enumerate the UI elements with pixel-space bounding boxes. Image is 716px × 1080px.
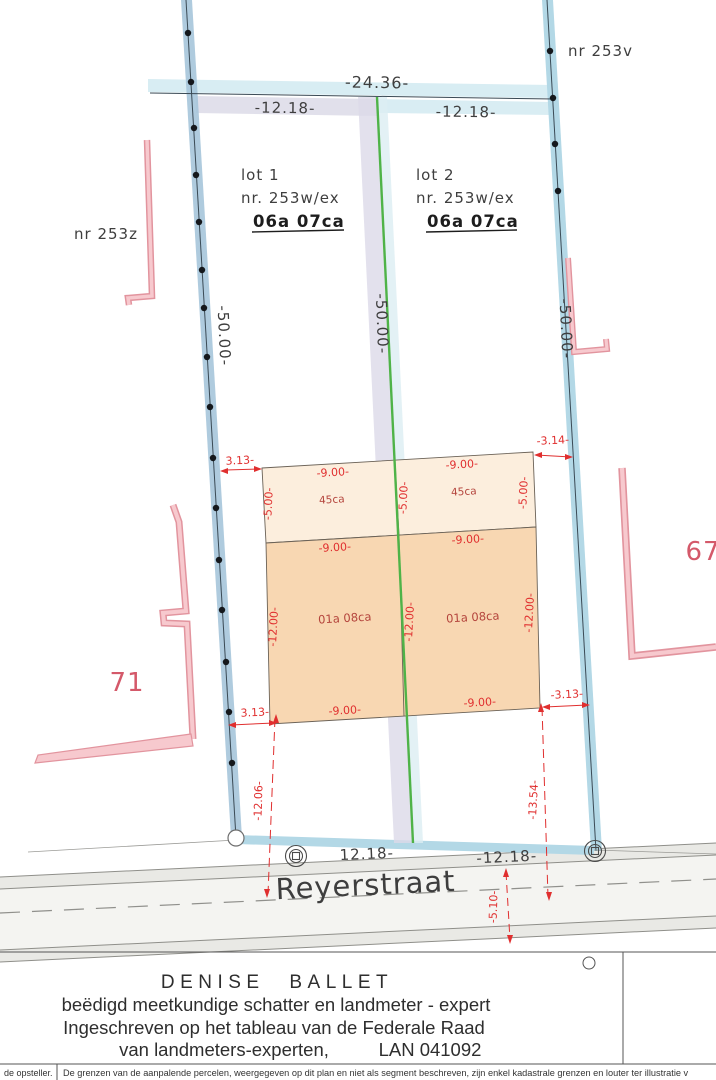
dim-label: -5.10- xyxy=(486,890,500,923)
lot2-title: lot 2 xyxy=(416,166,455,184)
neighbor-parcel-label-253z: nr 253z xyxy=(74,225,138,243)
boundary-point xyxy=(223,659,229,665)
dim-label: -3.13- xyxy=(550,687,583,702)
dim-label: -12.00- xyxy=(402,602,417,642)
cadastral-plan-page: Reyerstraat xyxy=(0,0,716,1080)
dim-label: -9.00- xyxy=(316,465,349,480)
arrowhead xyxy=(254,466,262,472)
dim-label-depth-right: -50.00- xyxy=(556,298,577,360)
boundary-point xyxy=(216,557,222,563)
registration-line2: van landmeters-experten, xyxy=(119,1039,329,1060)
dim-label: -5.00- xyxy=(516,476,531,509)
boundary-point xyxy=(210,455,216,461)
arrowhead xyxy=(220,468,228,474)
dim-label: -12.00- xyxy=(522,593,537,633)
open-corner-marker xyxy=(228,830,244,846)
house-number-71: 71 xyxy=(109,668,144,698)
boundary-point xyxy=(552,141,558,147)
dim-label-depth-mid: -50.00- xyxy=(372,293,392,354)
dim-label: -9.00- xyxy=(445,457,478,472)
dim-label: -9.00- xyxy=(463,695,496,710)
boundary-point xyxy=(555,188,561,194)
stamp-circle xyxy=(583,957,595,969)
lot2-area: 06a 07ca xyxy=(427,212,519,231)
arrowhead xyxy=(507,935,513,944)
dim-label: -13.54- xyxy=(526,780,541,820)
dim-label-rear-total: -24.36- xyxy=(345,73,410,93)
dim-label-front-left: 12.18- xyxy=(339,844,394,864)
boundary-point xyxy=(196,219,202,225)
lot1-parcel-number: nr. 253w/ex xyxy=(241,189,340,207)
dim-label-front-right: -12.18- xyxy=(476,847,538,868)
boundary-bands xyxy=(148,0,602,855)
neighbor-building-left-wing xyxy=(35,734,193,763)
lot1-area: 06a 07ca xyxy=(253,212,345,231)
dim-label: -12.00- xyxy=(266,607,281,647)
survey-plan-drawing: Reyerstraat xyxy=(0,0,716,1080)
strip-right-text: De grenzen van de aanpalende percelen, w… xyxy=(63,1068,689,1078)
registration-number: LAN 041092 xyxy=(379,1039,482,1060)
boundary-point xyxy=(193,172,199,178)
boundary-point xyxy=(226,709,232,715)
dim-line-br xyxy=(545,705,587,707)
strip-left-text: de opsteller. xyxy=(4,1068,53,1078)
dim-label: -12.06- xyxy=(251,781,265,821)
dim-label: -9.00- xyxy=(328,703,361,718)
boundary-point xyxy=(204,354,210,360)
building-area-label: 45ca xyxy=(319,493,345,506)
dim-label-rear-right: -12.18- xyxy=(436,103,497,122)
boundary-point xyxy=(219,607,225,613)
dim-line-tl xyxy=(226,469,257,470)
arrowhead xyxy=(534,452,542,458)
surveyor-title: beëdigd meetkundige schatter en landmete… xyxy=(62,994,491,1015)
arrowhead xyxy=(542,704,550,710)
boundary-point xyxy=(188,79,194,85)
boundary-point xyxy=(207,404,213,410)
dim-label: -5.00- xyxy=(396,481,411,514)
front-line-extension-left xyxy=(28,840,236,852)
dim-label: 3.13- xyxy=(240,705,269,719)
dim-label: -9.00- xyxy=(451,532,484,547)
boundary-point xyxy=(191,125,197,131)
lot1-title: lot 1 xyxy=(241,166,280,184)
dim-label-depth-left: -50.00- xyxy=(214,305,235,367)
house-number-67: 67 xyxy=(685,537,716,567)
boundary-point xyxy=(201,305,207,311)
boundary-point xyxy=(199,267,205,273)
title-block: DENISE BALLET beëdigd meetkundige schatt… xyxy=(0,952,716,1080)
lot2-parcel-number: nr. 253w/ex xyxy=(416,189,515,207)
registration-line: Ingeschreven op het tableau van de Feder… xyxy=(63,1017,485,1038)
boundary-point xyxy=(185,30,191,36)
boundary-point xyxy=(547,48,553,54)
neighbor-parcel-label-253v: nr 253v xyxy=(568,42,633,60)
building-area-label: 45ca xyxy=(451,485,477,498)
dim-label: -9.00- xyxy=(318,540,351,555)
right-boundary-line xyxy=(547,0,596,851)
boundary-point xyxy=(229,760,235,766)
boundary-point xyxy=(550,95,556,101)
boundary-point xyxy=(213,505,219,511)
dim-line-bl xyxy=(231,723,274,725)
dim-label: -5.00- xyxy=(261,487,276,520)
dim-label: -3.14- xyxy=(536,433,569,448)
dim-label-rear-left: -12.18- xyxy=(255,99,316,118)
surveyor-name: DENISE BALLET xyxy=(161,972,393,993)
dim-label: 3.13- xyxy=(225,453,254,467)
